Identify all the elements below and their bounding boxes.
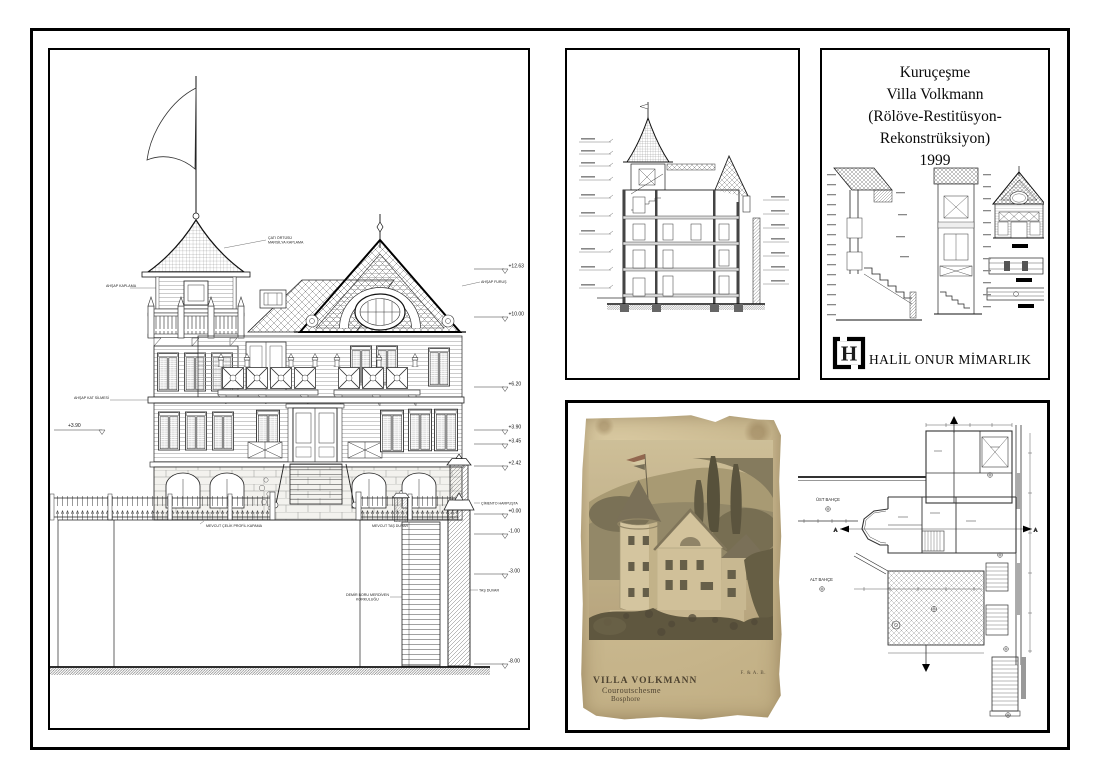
plan-upper-rooms (926, 423, 1012, 503)
svg-text:+3.90: +3.90 (509, 425, 522, 431)
entrance-door (286, 404, 344, 462)
floor-band (148, 397, 464, 403)
plan-section-line: A A (834, 526, 1038, 533)
svg-text:ÇİMENTO HARPUŞTA: ÇİMENTO HARPUŞTA (481, 501, 518, 506)
second-floor (154, 403, 462, 462)
plan-right-stairs (986, 563, 1008, 635)
svg-text:KORKULUĞU: KORKULUĞU (356, 597, 379, 602)
title-line-2: Villa Volkmann (822, 84, 1048, 106)
panel-section-drawing (565, 48, 800, 380)
postcard-image (589, 440, 773, 640)
balconette-left (248, 442, 282, 458)
plan-section-marker-bottom (922, 645, 930, 672)
caption-title: VILLA VOLKMANN (593, 676, 698, 686)
plan-label-lower-garden: ALT BAHÇE (810, 577, 833, 582)
presentation-board: ÇATI ÖRTÜSÜ MARSİLYA KAPLAMA AHŞAP KAPLA… (0, 0, 1100, 778)
level-mark-left: +3.90 (54, 423, 105, 435)
section-drawing (567, 50, 794, 374)
svg-text:A: A (834, 528, 838, 533)
panel-photo-and-plan: VILLA VOLKMANN Couroutschesme Bosphore F… (565, 400, 1050, 733)
project-title: Kuruçeşme Villa Volkmann (Rölöve-Restitü… (822, 62, 1048, 172)
title-line-3: (Rölöve-Restitüsyon- (822, 106, 1048, 128)
floor-plan-drawing: A A (794, 413, 1040, 720)
svg-text:AHŞAP FURUŞ: AHŞAP FURUŞ (481, 280, 507, 284)
svg-text:MEVCUT ÇELİK PROFİL KAPAMA: MEVCUT ÇELİK PROFİL KAPAMA (206, 523, 263, 528)
panel-title-block: Kuruçeşme Villa Volkmann (Rölöve-Restitü… (820, 48, 1050, 380)
tower-belvedere: AHŞAP KAPLAMA (106, 277, 244, 346)
caption-credit: F. & A. B. (741, 671, 766, 676)
svg-text:+0.00: +0.00 (509, 509, 522, 515)
plan-main-rooms (862, 447, 1016, 553)
svg-text:+2.42: +2.42 (509, 461, 522, 467)
svg-text:AHŞAP KAT SİLMESİ: AHŞAP KAT SİLMESİ (74, 395, 109, 400)
caption-region: Bosphore (611, 695, 698, 703)
stone-pier: ÇİMENTO HARPUŞTA TAŞ DUVAR (444, 454, 518, 666)
flag-pennant (147, 88, 196, 169)
section-tower (623, 102, 673, 190)
section-leaders-left (579, 138, 613, 288)
svg-text:+3.90: +3.90 (68, 423, 81, 429)
detail-section-stair (834, 168, 922, 320)
svg-text:-3.00: -3.00 (509, 569, 521, 575)
svg-text:+10.00: +10.00 (509, 312, 525, 318)
historic-postcard-photo: VILLA VOLKMANN Couroutschesme Bosphore F… (580, 414, 782, 720)
panel-front-elevation: ÇATI ÖRTÜSÜ MARSİLYA KAPLAMA AHŞAP KAPLA… (48, 48, 530, 730)
detail-gable-elevation (987, 166, 1044, 308)
svg-text:DEMİR BORU MERDİVEN: DEMİR BORU MERDİVEN (346, 592, 389, 597)
retaining-wall: MEVCUT ÇELİK PROFİL KAPAMA MEVCUT TAŞ DU… (58, 520, 462, 667)
svg-text:-1.00: -1.00 (509, 529, 521, 535)
detail-window-band (934, 168, 982, 314)
caption-location: Couroutschesme (602, 686, 698, 695)
section-body (597, 156, 765, 312)
detail-drawings (826, 162, 1044, 342)
svg-text:H: H (841, 342, 857, 366)
tower-spire: ÇATI ÖRTÜSÜ MARSİLYA KAPLAMA (142, 76, 304, 277)
firm-name: HALİL ONUR MİMARLIK (869, 352, 1031, 368)
postcard-villa-scene (589, 440, 773, 640)
plan-right-wall (1016, 425, 1032, 665)
svg-text:+12.63: +12.63 (509, 264, 525, 270)
svg-text:MARSİLYA KAPLAMA: MARSİLYA KAPLAMA (268, 240, 304, 245)
firm-signature: H HALİL ONUR MİMARLIK (832, 332, 1031, 370)
title-line-1: Kuruçeşme (822, 62, 1048, 84)
plan-label-upper-garden: ÜST BAHÇE (816, 497, 840, 502)
svg-text:+3.45: +3.45 (509, 439, 522, 445)
svg-text:TAŞ DUVAR: TAŞ DUVAR (479, 589, 499, 593)
section-leaders-right (763, 196, 789, 284)
main-roof-gable: AHŞAP FURUŞ (248, 214, 507, 332)
svg-text:A: A (1034, 528, 1038, 533)
level-marks-right: +12.63+10.00+6.20+3.90+3.45+2.42+0.00-1.… (474, 264, 524, 669)
firm-logo-icon: H (832, 336, 866, 370)
svg-text:ÇATI ÖRTÜSÜ: ÇATI ÖRTÜSÜ (268, 236, 292, 240)
balconette-right (348, 442, 382, 458)
svg-text:-8.00: -8.00 (509, 659, 521, 665)
svg-text:+6.20: +6.20 (509, 382, 522, 388)
svg-text:AHŞAP KAPLAMA: AHŞAP KAPLAMA (106, 284, 137, 288)
front-elevation-drawing: ÇATI ÖRTÜSÜ MARSİLYA KAPLAMA AHŞAP KAPLA… (50, 50, 528, 728)
title-line-4: Rekonstrüksiyon) (822, 128, 1048, 150)
plan-terrace (854, 553, 984, 653)
upper-floor (198, 336, 462, 406)
postcard-caption: VILLA VOLKMANN Couroutschesme Bosphore (593, 676, 698, 703)
ground-line (50, 667, 490, 675)
plan-lower-stair (990, 657, 1026, 716)
